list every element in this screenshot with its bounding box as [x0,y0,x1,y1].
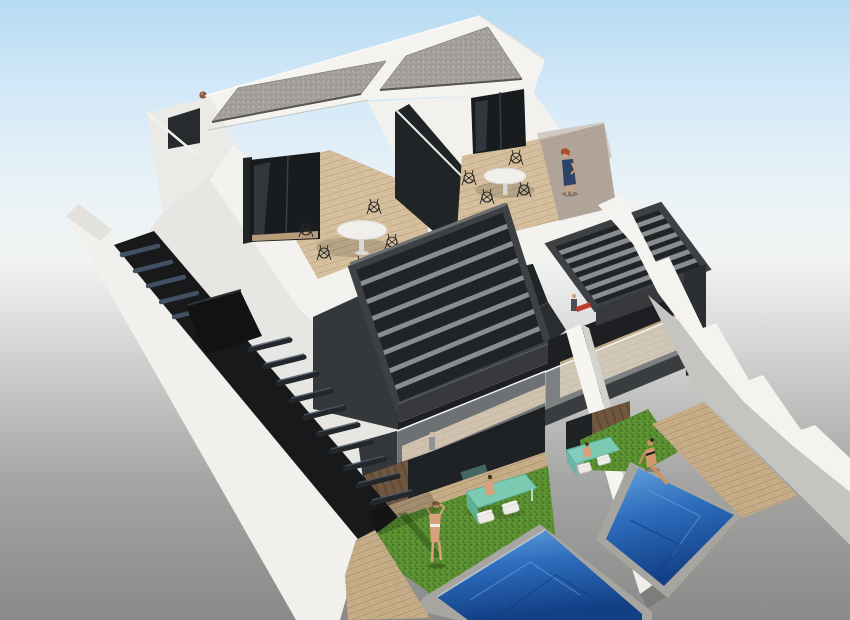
right-door-mullion [500,92,501,150]
resident-on-balcony-1 [571,294,577,311]
left-table-base [355,251,369,255]
roof-vent-knob [199,91,206,98]
roof-vent-highlight [201,93,203,95]
right-door-reflection [475,100,488,152]
left-round-table [337,221,387,240]
villa-3d-render [0,0,850,620]
render-viewport: Photorealistic 3D architectural renderin… [0,0,850,620]
right-round-table [484,168,526,184]
